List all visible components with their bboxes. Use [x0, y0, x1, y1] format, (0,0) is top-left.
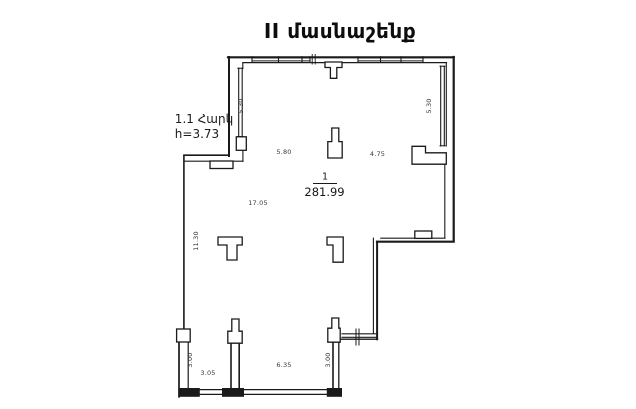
floor-label: 1.1 Հարկ [175, 112, 233, 126]
page-title: II մասնաշենք [264, 19, 416, 43]
room-area: 281.99 [304, 185, 344, 199]
wall-lines [179, 57, 454, 397]
dim-right-window: 5.30 [425, 98, 433, 113]
dim-bay-left-width: 3.05 [200, 369, 215, 377]
column-free-center [328, 128, 342, 158]
dim-bay-middle-width: 6.35 [276, 361, 291, 369]
column-bay-left [228, 319, 242, 343]
dim-upper-width: 5.80 [276, 148, 291, 156]
pier-left-window-end [236, 137, 246, 151]
floor-plan-drawing [0, 0, 636, 409]
column-mid-right [327, 237, 343, 262]
pier-upper-left [210, 161, 233, 169]
ceiling-height-label: h=3.73 [175, 127, 219, 141]
pier-step-wall [415, 231, 432, 238]
dim-upper-right-width: 4.75 [370, 150, 385, 158]
pier-and-column-shapes [177, 62, 447, 343]
column-bay-right [328, 318, 340, 342]
column-top-center [325, 62, 342, 78]
room-number: 1 [322, 172, 328, 183]
dim-bay-right-height: 3.00 [324, 352, 332, 367]
dim-main-width: 17.05 [248, 199, 268, 207]
dim-left-window: 5.30 [237, 98, 245, 113]
pier-right-wall [412, 146, 446, 164]
floor-plan-page: II մասնաշենք 1.1 Հարկ h=3.73 1 281.99 5.… [0, 0, 636, 409]
pier-lower-left [177, 329, 191, 342]
dim-bay-left-height: 3.00 [186, 352, 194, 367]
column-mid-left [218, 237, 242, 260]
dim-left-height: 11.30 [192, 231, 200, 251]
